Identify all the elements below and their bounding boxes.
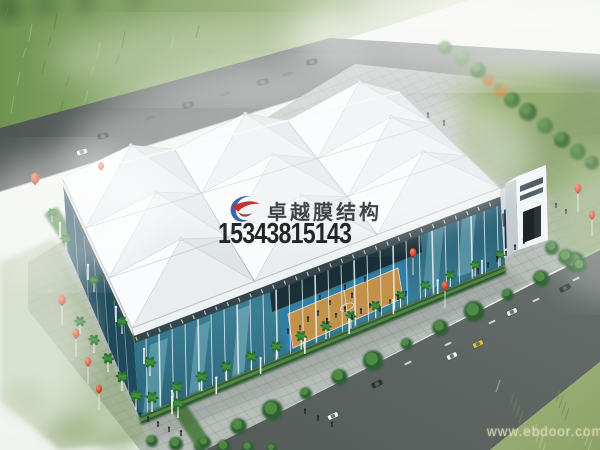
rendering-image: 卓越膜结构 15343815143 www.ebdoor.com <box>0 0 600 450</box>
watermark-phone-text: 15343815143 <box>218 218 351 251</box>
site-watermark-text: www.ebdoor.com <box>487 424 600 439</box>
logo-red-underside <box>238 212 252 217</box>
